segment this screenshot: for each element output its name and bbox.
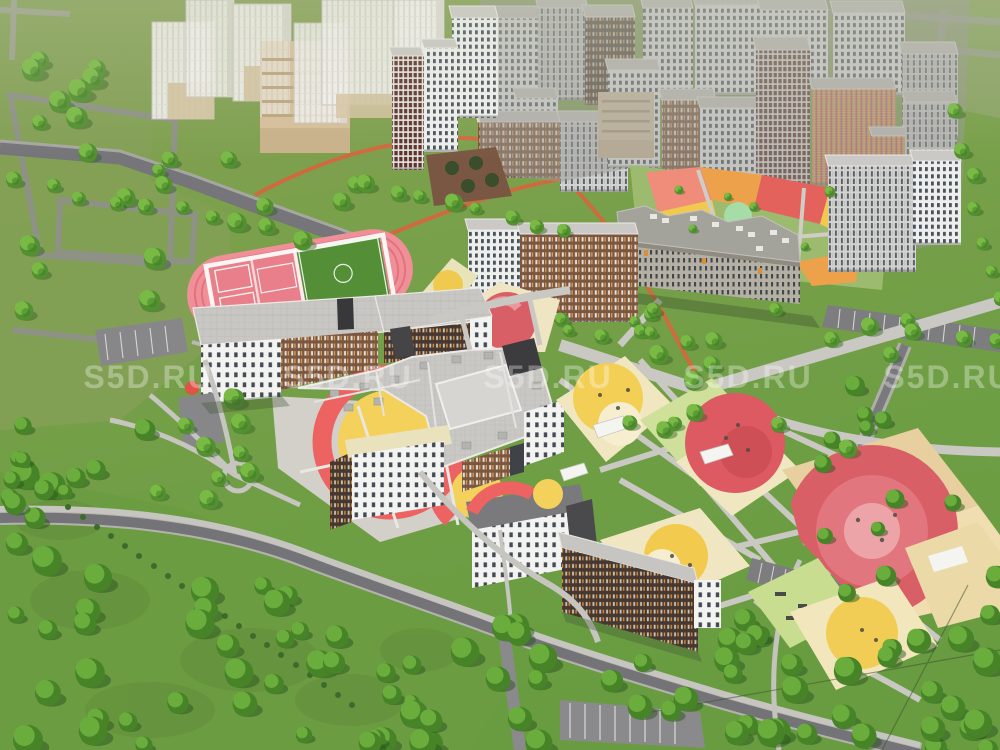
svg-text:S5D.RU: S5D.RU (483, 359, 612, 395)
svg-text:S5D.RU: S5D.RU (683, 359, 812, 395)
svg-text:S5D.RU: S5D.RU (883, 359, 1000, 395)
svg-text:S5D.RU: S5D.RU (83, 359, 212, 395)
svg-text:S5D.RU: S5D.RU (283, 359, 412, 395)
